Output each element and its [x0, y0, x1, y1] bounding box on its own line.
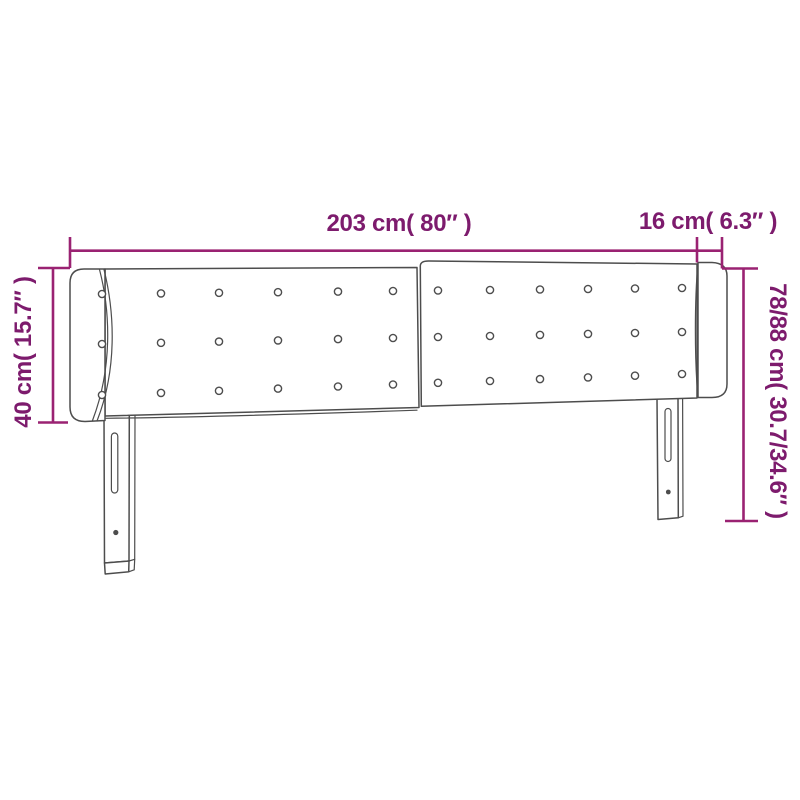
- tuft-button: [434, 379, 441, 386]
- dimension-label-left-height: 40 cm( 15.7″ ): [10, 276, 38, 427]
- tuft-button: [274, 289, 281, 296]
- tuft-button: [334, 288, 341, 295]
- tuft-button: [389, 287, 396, 294]
- tuft-button: [486, 377, 493, 384]
- tuft-button: [678, 328, 685, 335]
- tuft-button: [536, 376, 543, 383]
- tuft-button: [334, 336, 341, 343]
- tuft-button: [157, 389, 164, 396]
- left-leg: [104, 414, 135, 574]
- tuft-button: [157, 339, 164, 346]
- tuft-button: [389, 334, 396, 341]
- tuft-button: [215, 387, 222, 394]
- tuft-button: [631, 329, 638, 336]
- left-leg-hole: [113, 530, 118, 535]
- tuft-button: [334, 383, 341, 390]
- tuft-button: [486, 332, 493, 339]
- tuft-button: [678, 284, 685, 291]
- tuft-button: [98, 340, 105, 347]
- tuft-button: [631, 372, 638, 379]
- headboard-drawing: [0, 0, 800, 800]
- tuft-button: [678, 370, 685, 377]
- tuft-button: [434, 287, 441, 294]
- tuft-button: [434, 333, 441, 340]
- right-wing: [695, 263, 727, 398]
- tuft-button: [215, 338, 222, 345]
- tuft-button: [584, 374, 591, 381]
- tuft-button: [631, 285, 638, 292]
- tuft-button: [486, 286, 493, 293]
- tuft-button: [98, 290, 105, 297]
- right-leg-hole: [666, 490, 671, 495]
- tuft-button: [389, 381, 396, 388]
- tuft-button: [215, 289, 222, 296]
- tuft-button: [274, 337, 281, 344]
- headboard-dimension-diagram: 203 cm( 80″ ) 16 cm( 6.3″ ) 40 cm( 15.7″…: [0, 0, 800, 800]
- headboard-body: [70, 261, 727, 422]
- tuft-button: [274, 385, 281, 392]
- tuft-button: [157, 290, 164, 297]
- tuft-button: [584, 330, 591, 337]
- panel-right-half: [420, 261, 697, 406]
- right-leg: [657, 397, 683, 520]
- tuft-button: [536, 331, 543, 338]
- dimension-label-width: 203 cm( 80″ ): [326, 210, 471, 238]
- panel-left-half: [105, 268, 419, 417]
- dimension-label-side-depth: 16 cm( 6.3″ ): [639, 208, 777, 236]
- tuft-button: [584, 285, 591, 292]
- tuft-button: [536, 286, 543, 293]
- tuft-button: [98, 391, 105, 398]
- dimension-label-right-height: 78/88 cm( 30.7/34.6″ ): [763, 283, 791, 519]
